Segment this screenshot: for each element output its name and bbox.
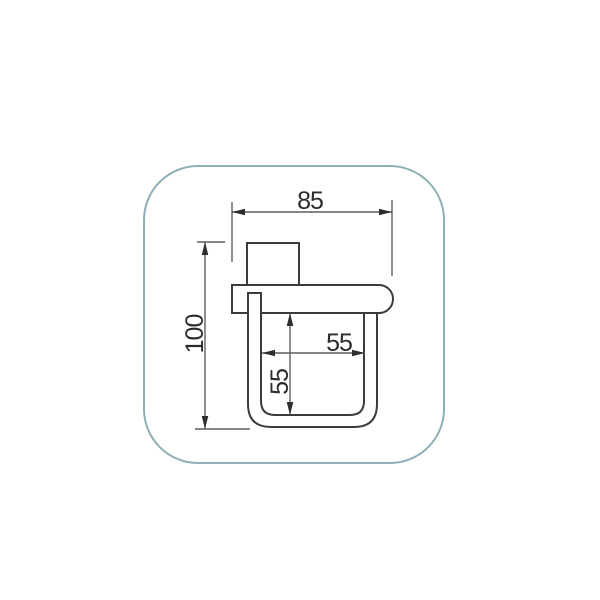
dimension-overall-height: 100 <box>181 242 250 429</box>
part-outline <box>232 243 393 427</box>
dim-100-label: 100 <box>181 315 209 354</box>
wall-mount-post <box>247 243 299 286</box>
dim-55v-arrow-top <box>287 313 294 326</box>
dim-55h-arrow-left <box>262 350 275 357</box>
dim-85-arrow-right <box>379 209 392 216</box>
dimension-inner-depth: 55 <box>266 313 294 415</box>
dim-55h-label: 55 <box>326 329 352 357</box>
drawing-canvas: 85 100 55 55 <box>0 0 600 600</box>
dim-100-arrow-top <box>202 242 209 255</box>
technical-drawing: 85 100 55 55 <box>0 0 600 600</box>
dim-85-arrow-left <box>232 209 245 216</box>
dim-55v-arrow-bottom <box>287 402 294 415</box>
dimension-inner-width: 55 <box>262 329 365 357</box>
dim-85-label: 85 <box>297 187 323 215</box>
dim-55v-label: 55 <box>266 369 294 395</box>
dim-100-arrow-bottom <box>202 416 209 429</box>
